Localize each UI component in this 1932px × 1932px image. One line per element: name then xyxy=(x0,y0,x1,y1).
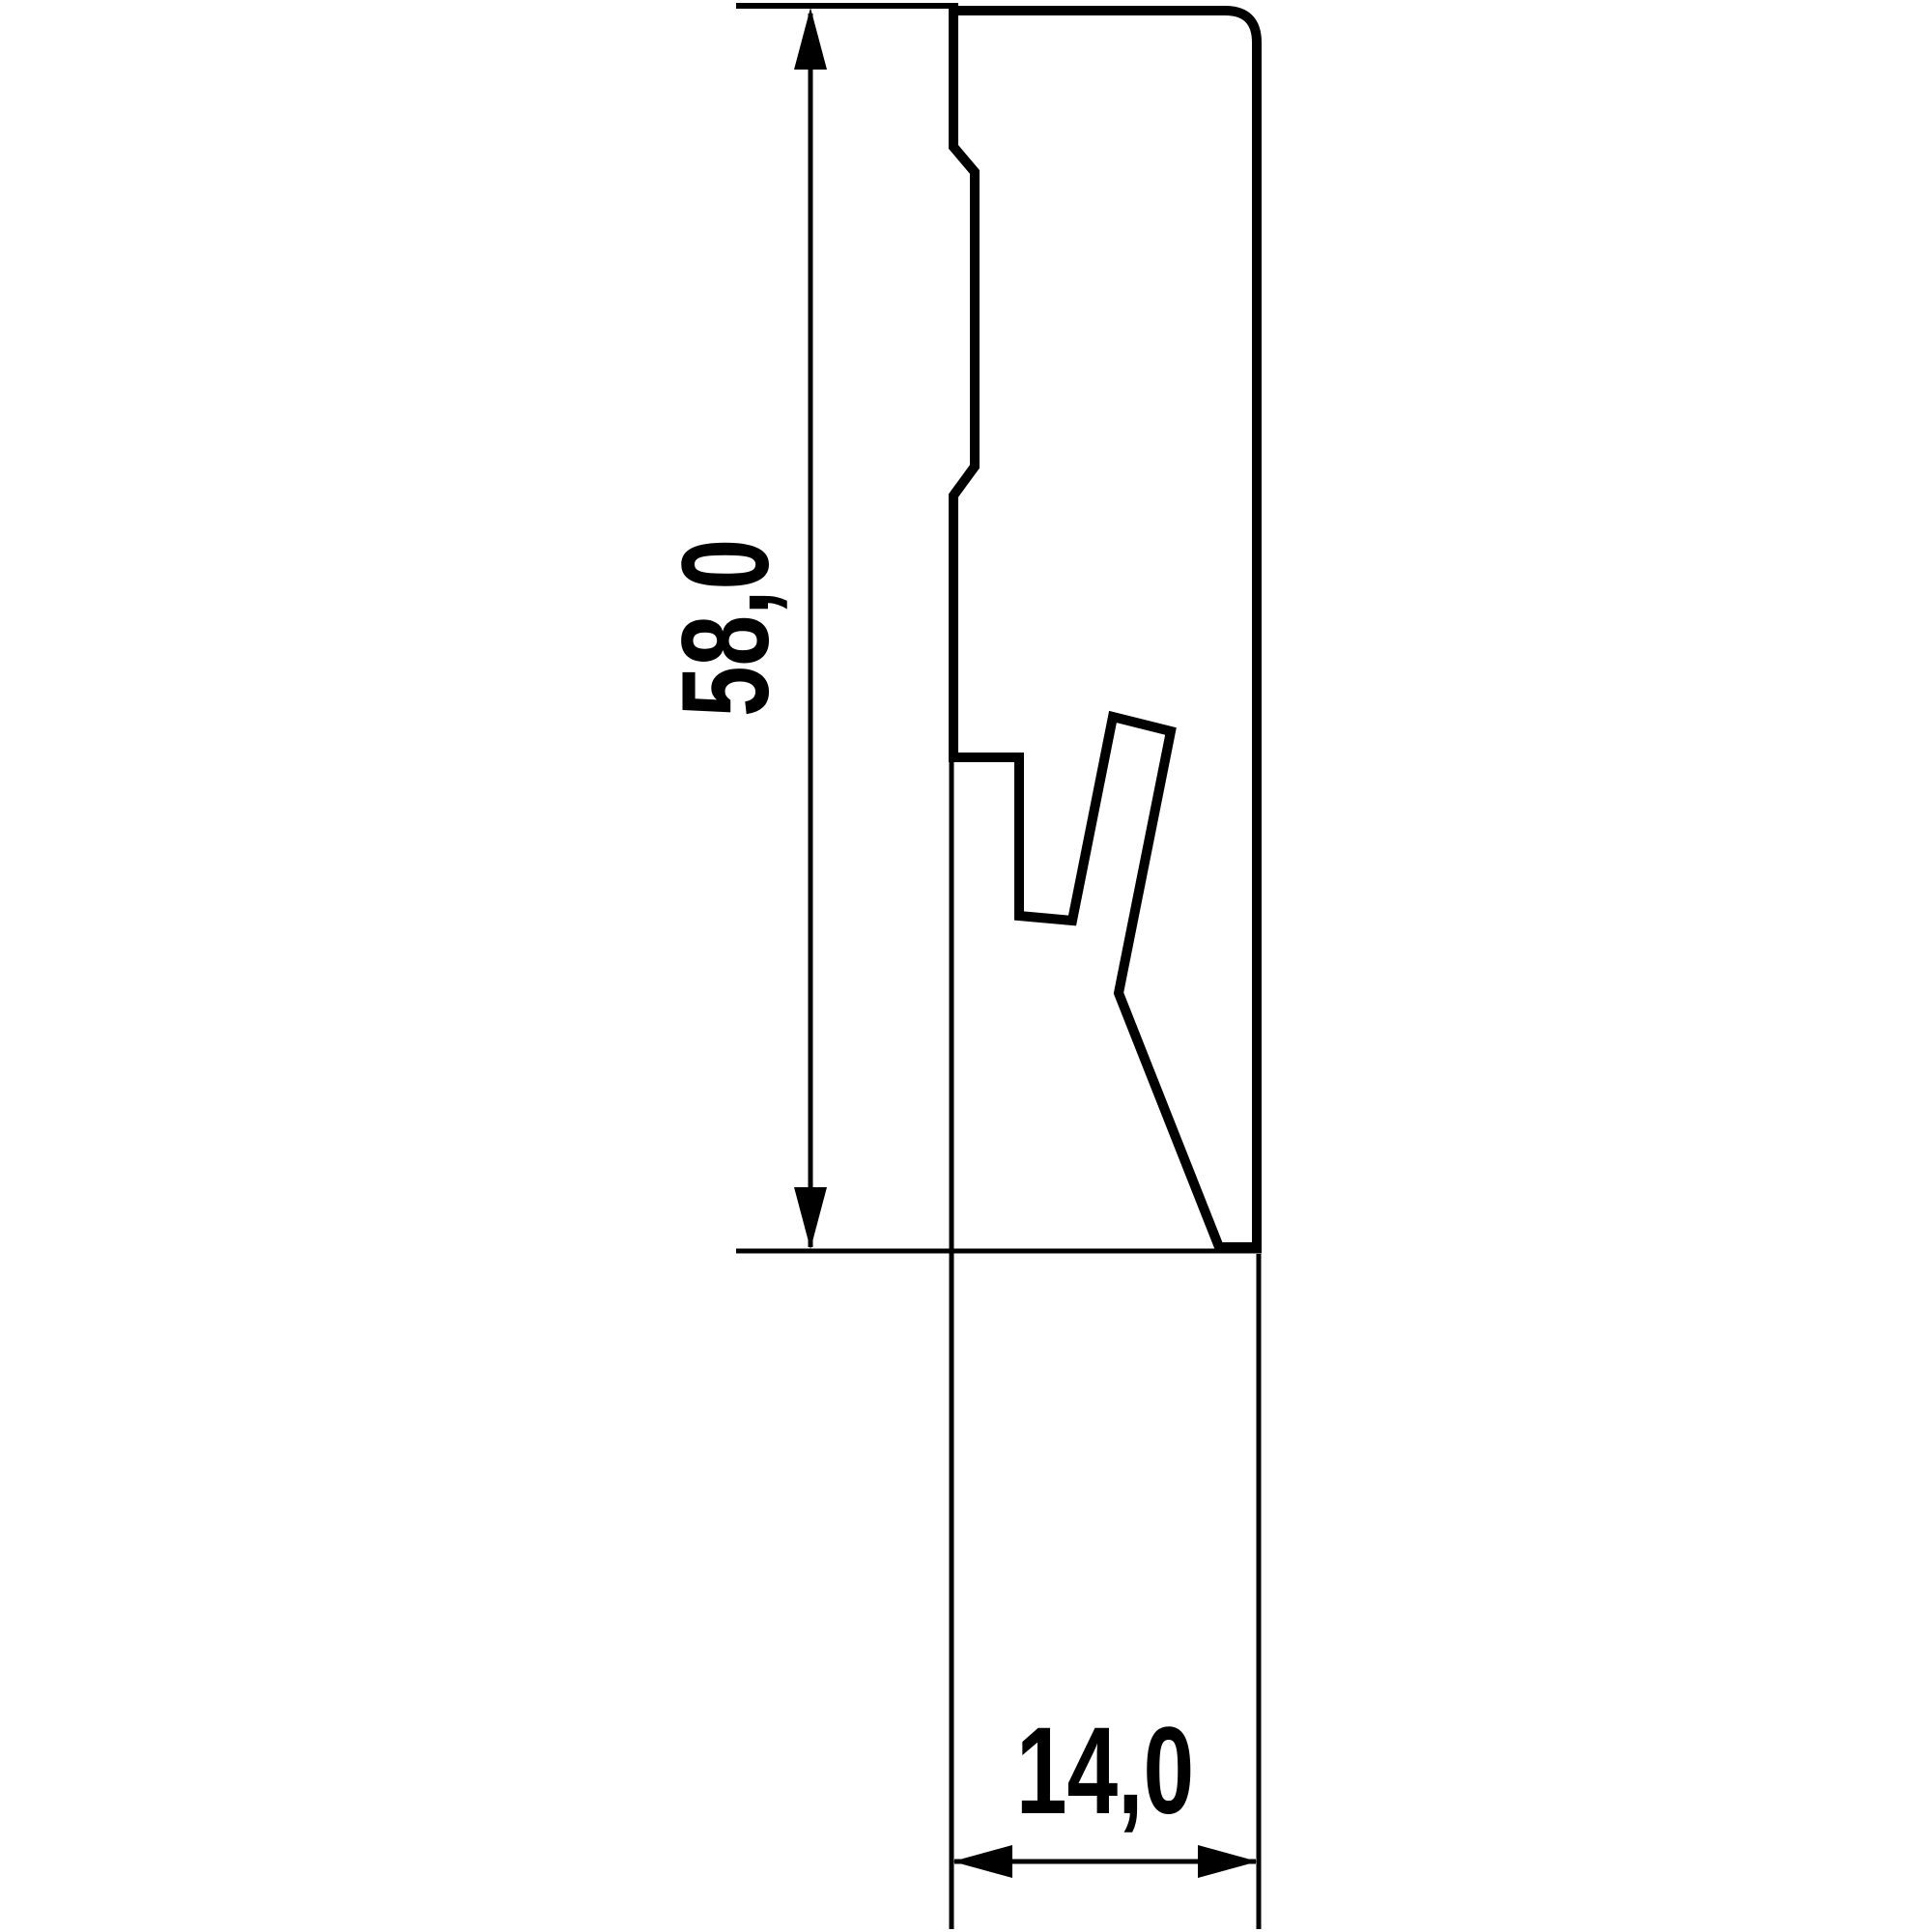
arrow-right-icon xyxy=(1198,1845,1258,1878)
height-dimension-label: 58,0 xyxy=(656,539,794,717)
arrow-left-icon xyxy=(952,1845,1012,1878)
drawing-canvas: 58,0 14,0 xyxy=(0,0,1932,1932)
arrow-down-icon xyxy=(794,1187,827,1249)
arrow-up-icon xyxy=(794,8,827,70)
width-dimension-label: 14,0 xyxy=(1016,1701,1194,1839)
skirting-profile-drawing: 58,0 14,0 xyxy=(0,0,1932,1932)
profile-outline xyxy=(953,11,1257,1247)
height-dimension: 58,0 xyxy=(656,8,827,1249)
width-dimension: 14,0 xyxy=(952,1701,1258,1878)
